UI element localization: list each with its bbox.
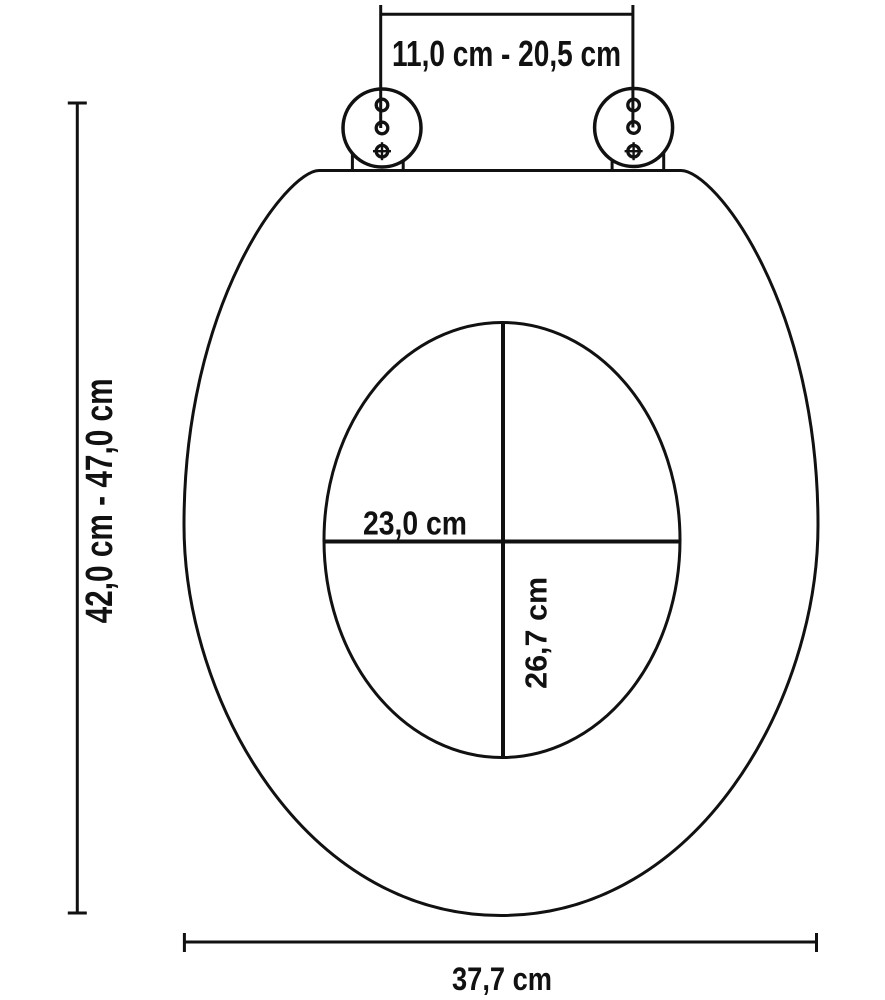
svg-text:37,7 cm: 37,7 cm	[452, 961, 552, 997]
svg-text:26,7 cm: 26,7 cm	[519, 577, 554, 689]
svg-text:23,0 cm: 23,0 cm	[363, 505, 467, 542]
svg-text:11,0 cm - 20,5 cm: 11,0 cm - 20,5 cm	[392, 33, 621, 74]
svg-text:42,0 cm - 47,0 cm: 42,0 cm - 47,0 cm	[79, 378, 121, 623]
